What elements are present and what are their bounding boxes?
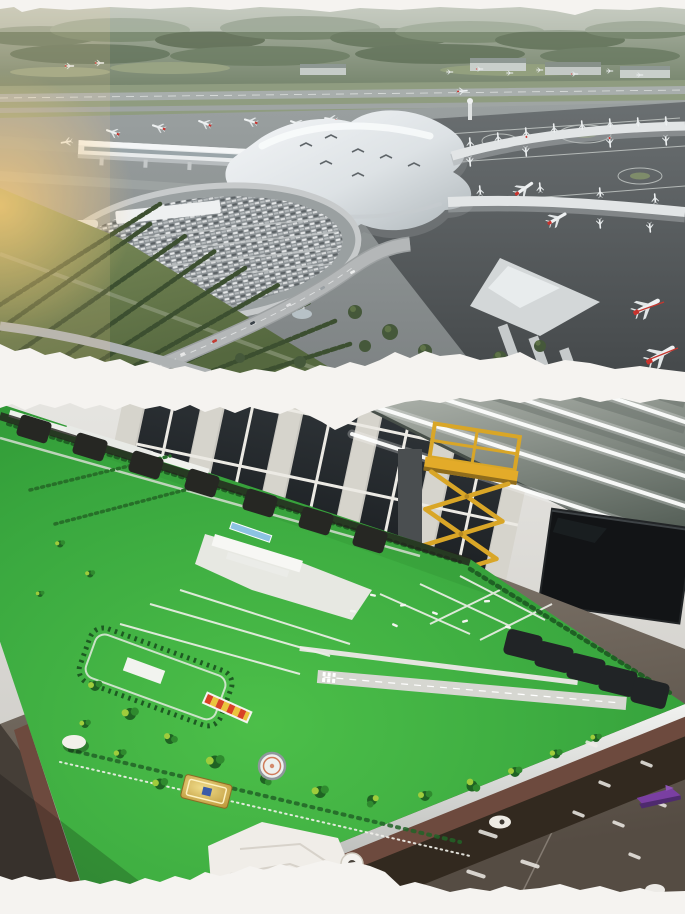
warm-light-cast <box>0 6 110 374</box>
aerial-rendering-scene <box>0 6 685 374</box>
photo-airport-aerial-rendering <box>0 6 685 374</box>
photo-airport-scale-model <box>0 394 685 897</box>
round-badge <box>259 753 285 779</box>
scale-model-scene <box>0 394 685 897</box>
taxiway-island <box>630 173 650 180</box>
tape-roll <box>340 853 364 880</box>
article-page <box>0 0 685 914</box>
